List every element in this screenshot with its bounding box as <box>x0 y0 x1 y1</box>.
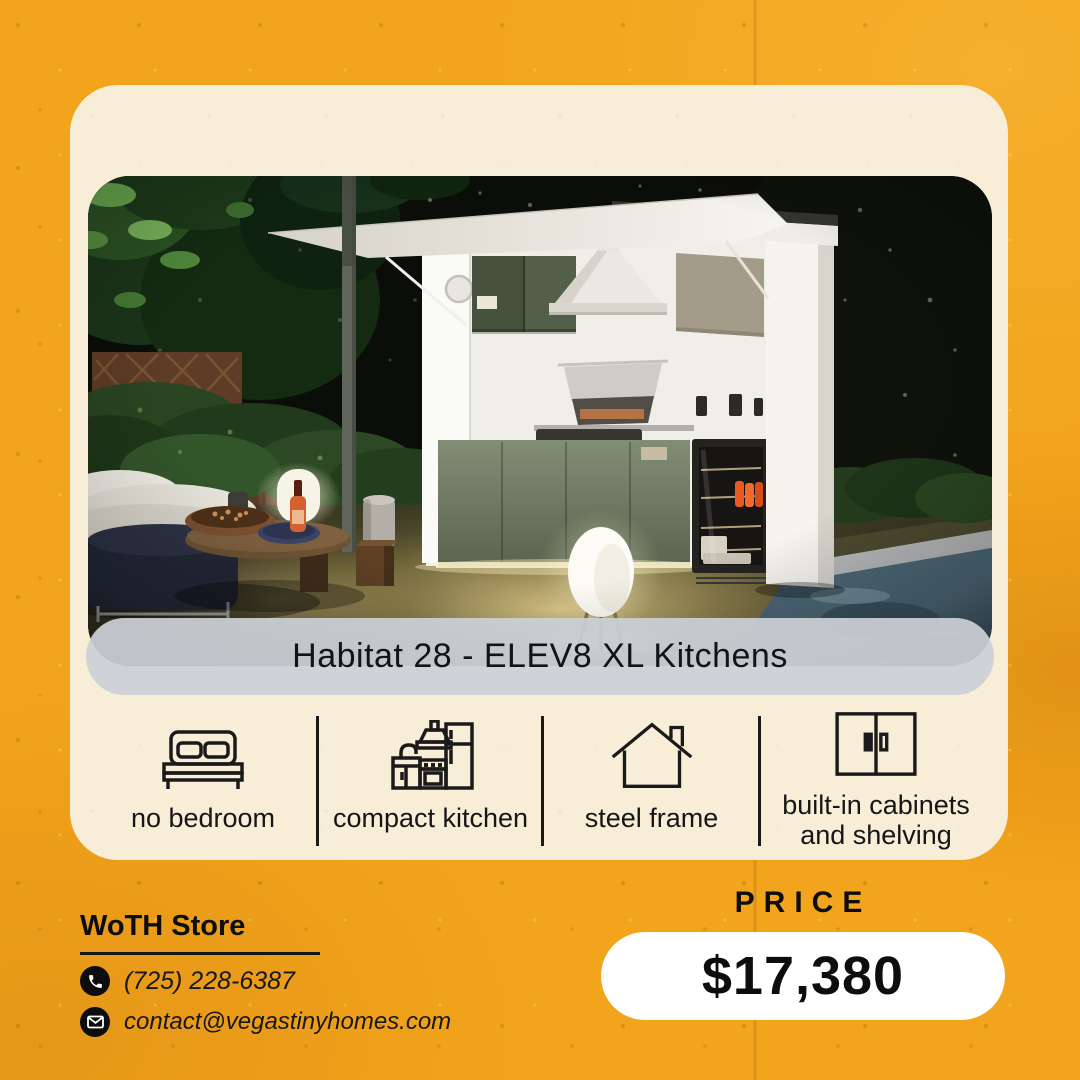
phone-row: (725) 228-6387 <box>80 966 451 996</box>
feature-label: built-in cabinets and shelving <box>771 790 981 850</box>
contact-store-name: WoTH Store <box>80 910 451 943</box>
email-row: contact@vegastinyhomes.com <box>80 1007 451 1037</box>
price-label: PRICE <box>601 886 1005 920</box>
phone-icon <box>80 966 110 996</box>
features-row: no bedroom <box>88 700 992 850</box>
product-card: WoTH STORE <box>70 85 1008 860</box>
divider <box>316 716 319 846</box>
vignette <box>88 176 992 666</box>
bed-icon <box>151 728 255 792</box>
price-block: PRICE $17,380 <box>601 886 1005 1020</box>
product-photo <box>88 176 992 666</box>
house-icon <box>606 718 698 792</box>
product-photo-frame <box>88 176 992 666</box>
feature-label: compact kitchen <box>333 803 528 833</box>
feature-label: steel frame <box>585 803 719 833</box>
product-name: Habitat 28 - ELEV8 XL Kitchens <box>292 637 788 676</box>
phone-number: (725) 228-6387 <box>124 967 295 996</box>
feature-no-bedroom: no bedroom <box>88 700 318 850</box>
kitchen-icon <box>381 720 481 792</box>
divider <box>541 716 544 846</box>
underline <box>80 952 320 955</box>
feature-label: no bedroom <box>131 803 275 833</box>
flyer: WoTH STORE <box>0 0 1080 1080</box>
product-name-pill: Habitat 28 - ELEV8 XL Kitchens <box>86 618 994 695</box>
price-pill: $17,380 <box>601 932 1005 1020</box>
price-value: $17,380 <box>702 945 904 1007</box>
cabinet-icon <box>831 709 921 779</box>
divider <box>758 716 761 846</box>
contact-block: WoTH Store (725) 228-6387 contact@vegast… <box>80 910 451 1037</box>
feature-compact-kitchen: compact kitchen <box>318 700 543 850</box>
feature-steel-frame: steel frame <box>543 700 760 850</box>
email-address: contact@vegastinyhomes.com <box>124 1008 451 1036</box>
email-icon <box>80 1007 110 1037</box>
feature-built-in-cabinets: built-in cabinets and shelving <box>760 700 992 850</box>
